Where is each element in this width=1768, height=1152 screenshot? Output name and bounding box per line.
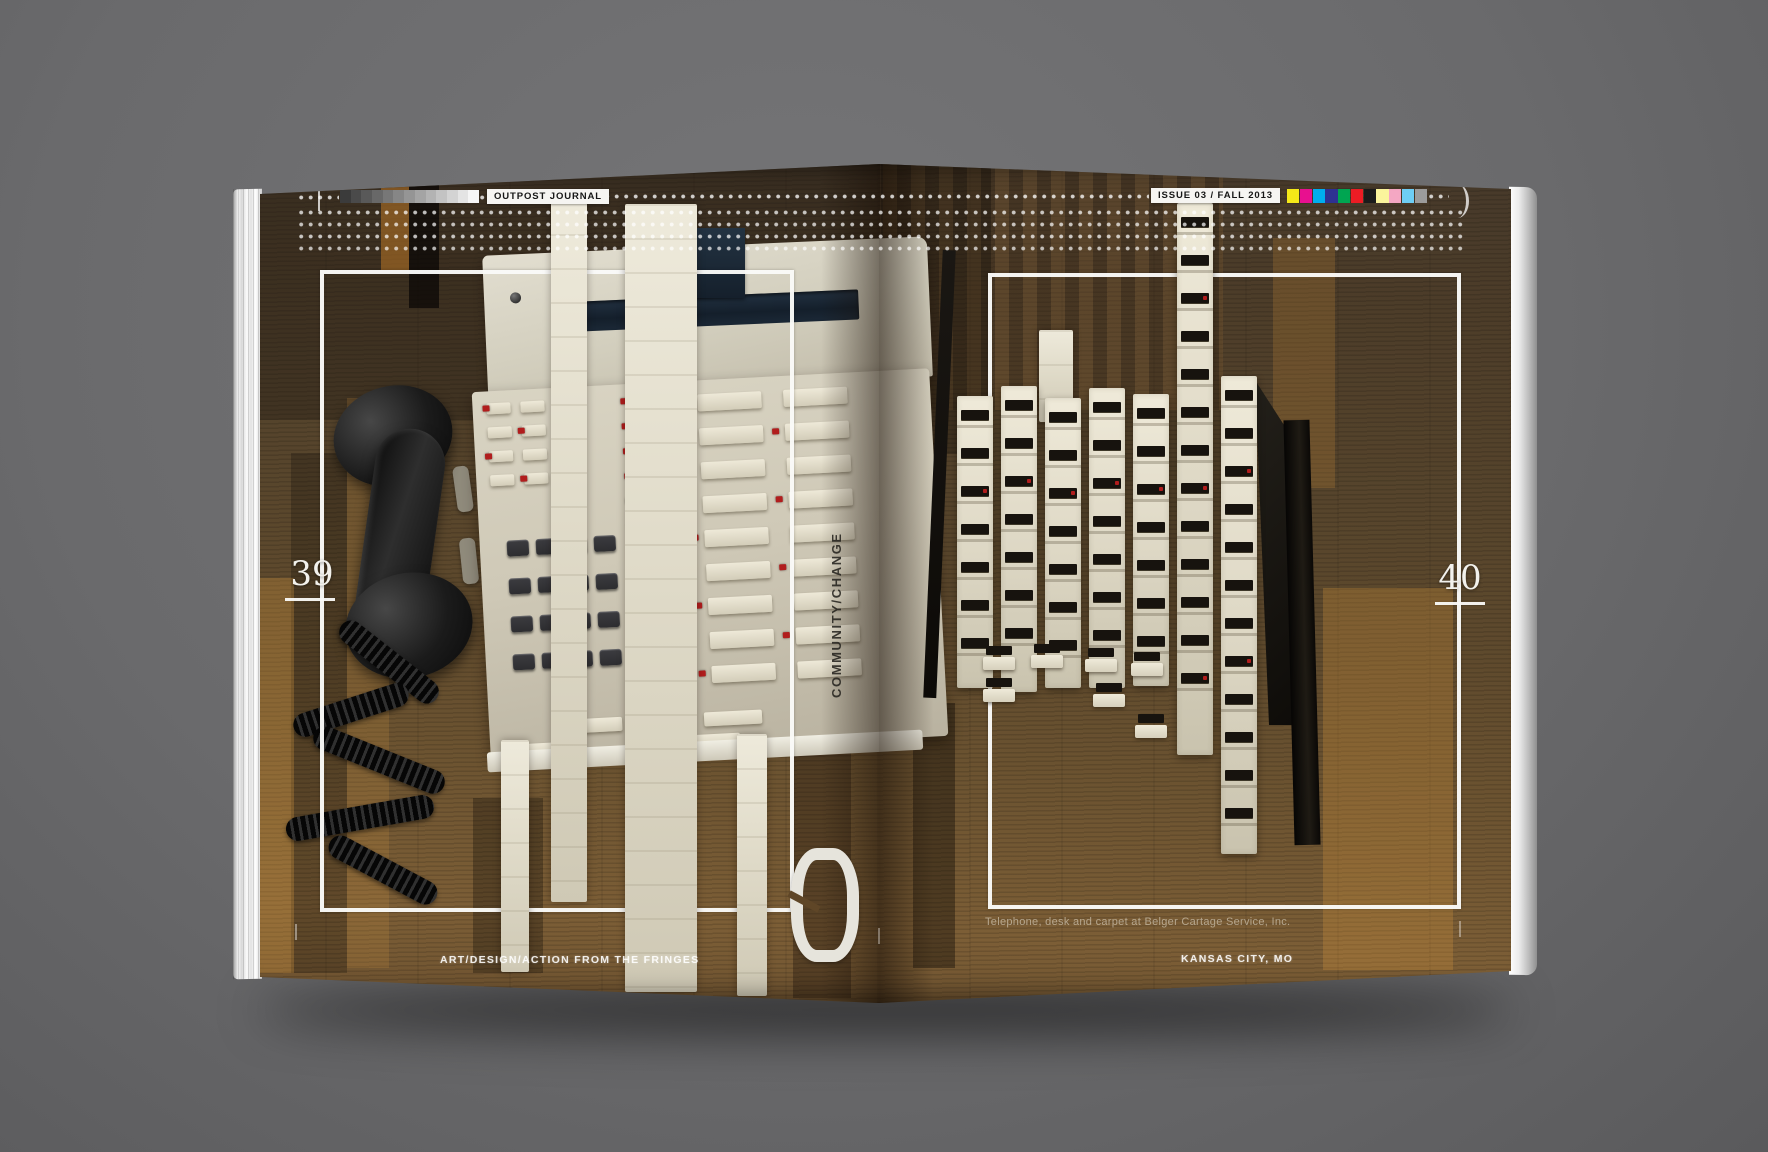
console-key-shadow [1221,595,1257,598]
console-key-shadow [1221,405,1257,408]
console-key [983,657,1015,670]
console-key-chip [1005,514,1033,525]
journal-title-label: OUTPOST JOURNAL [487,189,609,204]
console-key-shadow [957,577,993,580]
console-key-chip [1225,580,1253,591]
console-key-shadow [1177,422,1213,425]
phone-line-key [790,522,855,542]
phone-line-key [785,421,850,441]
grayscale-step [340,190,351,203]
console-key-chip [1093,630,1121,641]
color-bar-swatch [1351,189,1363,203]
console-key-shadow [1221,633,1257,636]
console-key-shadow [957,615,993,618]
console-key-shadow [1133,499,1169,502]
console-key-chip [986,646,1012,655]
console-key-shadow [1177,688,1213,691]
console-key-shadow [1221,823,1257,826]
console-key-chip [961,410,989,421]
console-key-chip [1088,648,1114,657]
console-key-shadow [1177,384,1213,387]
page-curl-edge-right [1509,187,1537,976]
console-led [1247,659,1251,663]
console-key-chip [1181,597,1209,608]
console-key-chip [1181,369,1209,380]
issue-label: ISSUE 03 / FALL 2013 [1151,188,1280,203]
console-key-shadow [957,539,993,542]
console-key-chip [1181,445,1209,456]
console-key-chip [1137,408,1165,419]
color-bar-swatch [1325,189,1337,203]
color-bar-swatch [1287,189,1299,203]
console-key-chip [1137,560,1165,571]
console-key [1093,694,1125,707]
console-key-shadow [1221,519,1257,522]
console-key-chip [1137,636,1165,647]
console-led [1159,487,1163,491]
page-stack-edge-left [233,189,262,980]
glitch-strip [625,204,697,992]
grayscale-step [415,190,426,203]
console-led [1071,491,1075,495]
console-key-chip [1225,732,1253,743]
console-key-shadow [957,501,993,504]
zero-glitch-notch [787,890,820,912]
backdrop: OUTPOST JOURNAL ISSUE 03 / FALL 2013 39 … [0,0,1768,1152]
console-key-chip [961,638,989,649]
console-key-chip [1137,446,1165,457]
console-key-shadow [1001,491,1037,494]
console-key-chip [961,600,989,611]
console-key-shadow [1045,541,1081,544]
console-key-chip [1049,564,1077,575]
big-zero-glyph [791,848,859,962]
console-key-shadow [1221,747,1257,750]
registration-tick [318,191,320,211]
console-key-shadow [957,425,993,428]
grayscale-step [447,190,458,203]
dot-row [299,246,1465,251]
console-key-chip [1049,526,1077,537]
dot-row [1429,194,1449,199]
color-bar-swatch [1389,189,1401,203]
grayscale-step [361,190,372,203]
console-key-chip [1005,400,1033,411]
grayscale-step [426,190,437,203]
console-key-chip [1093,402,1121,413]
console-key-chip [1134,652,1160,661]
console-key-chip [1093,440,1121,451]
crop-mark [878,928,880,944]
console-key-chip [1181,635,1209,646]
crop-mark [1459,921,1461,937]
console-key-shadow [1045,579,1081,582]
color-bar-swatch [1338,189,1350,203]
console-key-shadow [1221,709,1257,712]
console-key-chip [1225,694,1253,705]
console-key-shadow [1133,537,1169,540]
console-key-shadow [1045,465,1081,468]
console-key-shadow [1177,308,1213,311]
console-led [1247,469,1251,473]
console-key-shadow [1177,536,1213,539]
console-key-shadow [1001,529,1037,532]
console-key-chip [1225,808,1253,819]
console-key-shadow [1045,427,1081,430]
phone-line-key [792,556,857,576]
console-key [1085,659,1117,672]
console-key-chip [1137,522,1165,533]
console-key-chip [1093,554,1121,565]
console-key-shadow [1089,607,1125,610]
page-number-right: 40 [1433,558,1487,598]
console-key-chip [961,524,989,535]
dot-row [299,222,1465,227]
dot-row [299,234,1465,239]
console-key-shadow [957,463,993,466]
console-key-shadow [1221,557,1257,560]
console-key-shadow [1177,574,1213,577]
open-pages: OUTPOST JOURNAL ISSUE 03 / FALL 2013 39 … [233,158,1537,1008]
console-key-chip [1225,390,1253,401]
console-key-chip [1096,683,1122,692]
console-led [1115,481,1119,485]
phone-line-key [794,590,859,610]
console-key-shadow [1221,785,1257,788]
phone-line-key [788,488,853,508]
console-key-chip [1138,714,1164,723]
console-column [1133,394,1169,686]
console-key-shadow [1177,346,1213,349]
dot-row [299,210,1465,215]
console-key-chip [1093,516,1121,527]
console-key-chip [1225,618,1253,629]
crop-mark [295,924,297,940]
console-key-shadow [1133,461,1169,464]
console-key-chip [1225,770,1253,781]
glitch-strip [737,734,767,996]
console-key-shadow [1089,493,1125,496]
console-key-chip [961,448,989,459]
console-key [1135,725,1167,738]
console-key-shadow [1177,460,1213,463]
console-key-shadow [1221,443,1257,446]
color-bar-swatch [1376,189,1388,203]
console-led [983,489,987,493]
console-key-shadow [1177,612,1213,615]
console-key-chip [1005,438,1033,449]
console-key-chip [1225,428,1253,439]
console-key [983,689,1015,702]
console-column [1177,203,1213,755]
grayscale-step [404,190,415,203]
console-key-shadow [1177,498,1213,501]
console-key-shadow [1133,423,1169,426]
console-key-shadow [1001,453,1037,456]
console-key-shadow [1089,455,1125,458]
grayscale-step [468,190,479,203]
console-key-shadow [1045,503,1081,506]
photo-caption: Telephone, desk and carpet at Belger Car… [985,916,1290,928]
page-number-left: 39 [285,554,339,594]
console-key-shadow [1133,575,1169,578]
console-key-shadow [1089,569,1125,572]
console-led [1027,479,1031,483]
grayscale-step [436,190,447,203]
console-key-chip [1181,331,1209,342]
console-column [1221,376,1257,854]
magazine-spread: OUTPOST JOURNAL ISSUE 03 / FALL 2013 39 … [233,158,1537,1008]
phone-line-key [787,454,852,474]
grayscale-calibration-bar [340,190,479,203]
console-key-chip [1225,504,1253,515]
console-key [1131,663,1163,676]
grayscale-step [372,190,383,203]
console-key-shadow [1089,531,1125,534]
console-led [1203,296,1207,300]
console-key-chip [1181,407,1209,418]
console-key-chip [986,678,1012,687]
console-key-shadow [1045,617,1081,620]
footer-location: KANSAS CITY, MO [1181,953,1293,965]
console-column [1089,388,1125,688]
console-column [957,396,993,688]
console-key-chip [1049,602,1077,613]
console-key-chip [1137,598,1165,609]
console-key-shadow [1177,270,1213,273]
console-key-chip [961,562,989,573]
console-key-shadow [1001,415,1037,418]
console-key-chip [1005,628,1033,639]
dot-row [605,194,1149,199]
footer-tagline: ART/DESIGN/ACTION FROM THE FRINGES [440,954,699,966]
console-key [1031,655,1063,668]
color-bar-swatch [1364,189,1376,203]
grayscale-step [383,190,394,203]
grayscale-step [351,190,362,203]
console-key-chip [1225,542,1253,553]
color-bar-swatch [1300,189,1312,203]
phone-line-key [795,624,860,644]
console-key-chip [1181,559,1209,570]
glitch-strip [501,740,529,972]
console-key-shadow [1177,650,1213,653]
console-key-chip [1005,552,1033,563]
console-key-chip [1181,255,1209,266]
page-number-rule-left [285,598,335,601]
cmyk-calibration-bar [1287,189,1428,203]
page-number-rule-right [1435,602,1485,605]
spine-vertical-text: COMMUNITY/CHANGE [829,536,844,698]
console-key-chip [1093,592,1121,603]
color-bar-swatch [1415,189,1427,203]
console-key-shadow [1221,481,1257,484]
console-key-chip [1034,644,1060,653]
glitch-strip [551,200,587,902]
wood-glitch-strip [260,578,294,973]
grayscale-step [458,190,469,203]
console-key-chip [1005,590,1033,601]
console-key-shadow [1133,613,1169,616]
grayscale-step [393,190,404,203]
console-key-shadow [1001,567,1037,570]
console-key-chip [1049,412,1077,423]
console-key-chip [1181,521,1209,532]
console-key-shadow [1221,671,1257,674]
console-key-shadow [1001,605,1037,608]
console-led [1203,486,1207,490]
color-bar-swatch [1313,189,1325,203]
color-bar-swatch [1402,189,1414,203]
console-led [1203,676,1207,680]
console-key-shadow [1089,417,1125,420]
console-key-chip [1049,450,1077,461]
